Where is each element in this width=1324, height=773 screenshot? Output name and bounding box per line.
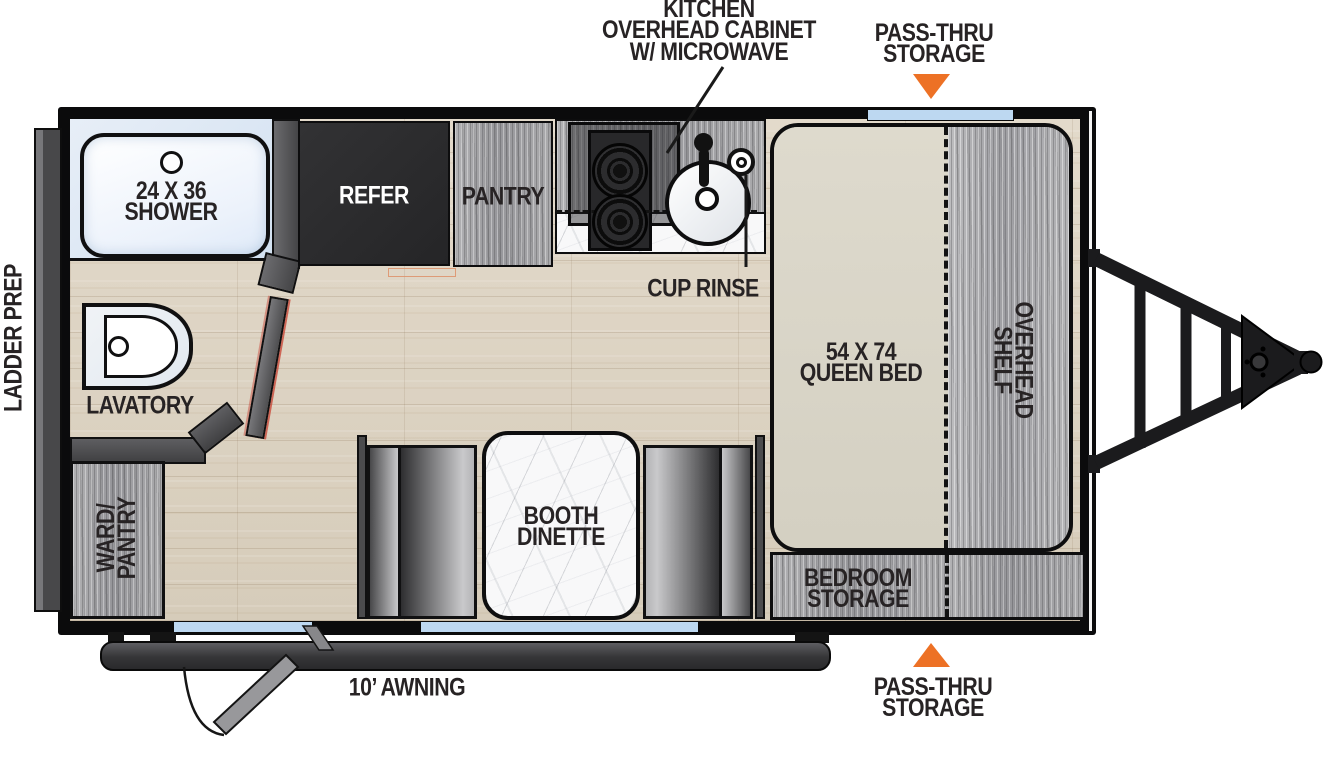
awning-bar — [100, 641, 831, 671]
booth-dinette-label: BOOTH DINETTE — [517, 506, 605, 549]
dinette-wall-post — [357, 435, 367, 619]
pass-thru-bottom-label: PASS-THRU STORAGE — [874, 677, 993, 720]
lavatory-label: LAVATORY — [86, 395, 194, 416]
pantry-label: PANTRY — [462, 186, 544, 207]
pass-thru-marker-top — [913, 74, 950, 99]
queen-bed-label: 54 X 74 QUEEN BED — [800, 342, 923, 385]
bench-backrest — [370, 448, 401, 616]
stove-burner-icon — [592, 143, 648, 199]
refer-label: REFER — [339, 185, 409, 206]
hitch-a-frame-icon — [1088, 249, 1322, 473]
ladder-prep-label: LADDER PREP — [3, 264, 24, 412]
kitchen-overhead-label: KITCHEN OVERHEAD CABINET W/ MICROWAVE — [602, 0, 816, 63]
window-strip — [173, 621, 313, 633]
ladder-prep-bar — [34, 128, 62, 612]
stove-burner-icon — [592, 194, 648, 250]
bench-seat — [646, 448, 719, 616]
cup-rinse-icon — [727, 148, 755, 176]
faucet-knob-icon — [694, 133, 713, 152]
toilet-icon — [82, 303, 193, 390]
shower-label: 24 X 36 SHOWER — [124, 181, 217, 224]
refer-vent — [388, 268, 456, 277]
dinette-bench-right — [643, 445, 753, 619]
bath-wall-pillar — [272, 119, 300, 269]
bench-backrest — [719, 448, 750, 616]
faucet-icon — [699, 148, 709, 187]
hitch-coupler-icon — [1301, 352, 1322, 373]
window-strip — [420, 621, 699, 633]
dinette-bench-left — [367, 445, 477, 619]
toilet-flush-icon — [108, 336, 129, 357]
awning-label: 10’ AWNING — [349, 677, 466, 698]
bedroom-storage-label: BEDROOM STORAGE — [804, 568, 912, 611]
shower-drain-icon — [160, 151, 183, 174]
bedroom-storage-right — [949, 555, 1083, 617]
tongue-jack-icon — [1251, 354, 1267, 370]
cup-rinse-label: CUP RINSE — [647, 278, 759, 299]
cup-rinse-center — [736, 157, 747, 168]
bath-bottom-wall — [70, 437, 206, 464]
window-strip — [867, 109, 1014, 121]
entry-door-swing-arc — [184, 667, 224, 735]
pass-thru-marker-bottom — [913, 643, 950, 667]
floorplan-canvas: KITCHEN OVERHEAD CABINET W/ MICROWAVE PA… — [0, 0, 1324, 773]
dinette-wall-post — [755, 435, 765, 619]
bench-seat — [401, 448, 474, 616]
pass-thru-top-label: PASS-THRU STORAGE — [875, 23, 994, 66]
right-wall-seam — [1089, 111, 1092, 631]
sink-drain-icon — [695, 187, 719, 211]
overhead-shelf-label: OVERHEAD SHELF — [991, 301, 1034, 418]
ward-pantry-label: WARD/ PANTRY — [96, 497, 139, 579]
